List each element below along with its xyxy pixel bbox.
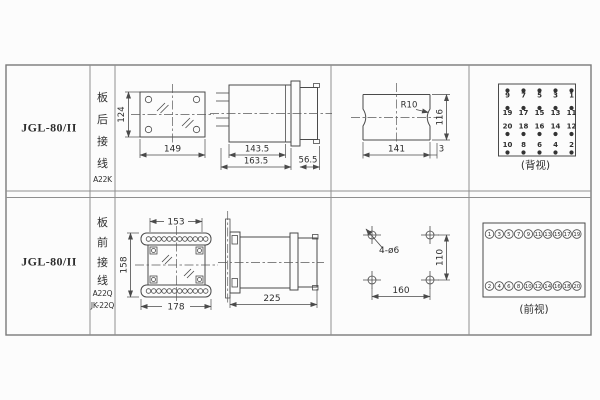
terminal-screw xyxy=(193,289,198,294)
terminal-pin-dot xyxy=(553,132,557,136)
terminal-circle-number: 20 xyxy=(573,284,580,290)
terminal-circle-number: 1 xyxy=(488,232,491,238)
model-name: JGL-80/II xyxy=(21,255,77,269)
terminal-screw xyxy=(157,237,162,242)
terminal-circle-number: 6 xyxy=(507,284,511,290)
front-top-width-dim: 153 xyxy=(167,218,184,228)
terminal-pin-number: 12 xyxy=(567,123,577,131)
terminal-pin-number: 15 xyxy=(535,109,545,117)
wiring-char: 板 xyxy=(97,90,108,104)
wiring-char: 接 xyxy=(97,135,108,148)
terminal-pin-dot xyxy=(569,132,573,136)
terminal-circle-number: 18 xyxy=(564,284,571,290)
front-view-caption: (前视) xyxy=(519,303,548,316)
terminal-pin-dot xyxy=(553,150,557,154)
wiring-char: 接 xyxy=(97,256,108,269)
terminal-screw xyxy=(177,289,182,294)
wiring-char: 板 xyxy=(97,215,108,229)
terminal-pin-number: 5 xyxy=(537,92,542,100)
terminal-pin-dot xyxy=(537,150,541,154)
wiring-type-label: 板 前 接 线 A22Q JK-22Q xyxy=(90,215,115,310)
drill-hole xyxy=(421,226,439,244)
rear-terminal-grid: 9753119171513112018161412108642 xyxy=(503,88,577,154)
terminal-screw xyxy=(188,237,193,242)
terminal-screw xyxy=(151,289,156,294)
strip-screws-top xyxy=(146,237,208,242)
front-terminal-grid: 1357911131517192468101214161820 xyxy=(485,230,581,291)
wiring-char: 线 xyxy=(97,273,108,287)
terminal-circle-number: 9 xyxy=(527,232,531,238)
drill-hole xyxy=(363,271,381,289)
wiring-char: 前 xyxy=(97,235,108,249)
drill-holes-label: 4-ø6 xyxy=(379,246,399,256)
terminal-circle-number: 4 xyxy=(497,284,501,290)
wiring-type-label: 板 后 接 线 A22K xyxy=(93,90,113,184)
terminal-screw xyxy=(177,237,182,242)
cutout-radius-label: R10 xyxy=(401,101,418,111)
terminal-circle-number: 15 xyxy=(554,232,561,238)
terminal-pin-dot xyxy=(505,150,509,154)
terminal-screw xyxy=(172,289,177,294)
terminal-screw xyxy=(162,289,167,294)
terminal-pin-dot xyxy=(521,132,525,136)
side-case-dim: 143.5 xyxy=(245,145,269,155)
front-width-dim: 178 xyxy=(167,303,184,313)
terminal-pin-number: 20 xyxy=(503,123,513,131)
cutout-edge-dim: 3 xyxy=(439,145,444,155)
rear-terminal-view: 9753119171513112018161412108642 (背视) xyxy=(499,84,577,172)
row-front-wiring: JGL-80/II 板 前 接 线 A22Q JK-22Q xyxy=(21,211,585,316)
cutout-height-dim: 116 xyxy=(436,109,446,125)
terminal-pin-dot xyxy=(505,132,509,136)
terminal-circle-number: 14 xyxy=(544,284,551,290)
terminal-screw xyxy=(172,237,177,242)
glass-hatch xyxy=(157,103,194,128)
terminal-screw xyxy=(188,289,193,294)
terminal-pin-number: 18 xyxy=(519,123,529,131)
cutout-width-dim: 141 xyxy=(388,145,405,155)
terminal-pin-number: 14 xyxy=(551,123,561,131)
side-view-drawing: 143.5 163.5 56.5 xyxy=(210,81,332,170)
strip-screws-bottom xyxy=(146,289,208,294)
relay-dimension-sheet: JGL-80/II 板 后 接 线 A22K 124 149 xyxy=(0,0,600,400)
terminal-screw xyxy=(167,289,172,294)
terminal-circle-number: 7 xyxy=(517,232,520,238)
front-view-drawing: 124 149 xyxy=(117,84,214,158)
terminal-pin-number: 1 xyxy=(569,92,574,100)
terminal-screw xyxy=(162,237,167,242)
front-terminal-view: 1357911131517192468101214161820 (前视) xyxy=(483,223,585,316)
terminal-pin-dot xyxy=(521,150,525,154)
terminal-pin-number: 19 xyxy=(503,109,513,117)
glass-hatch xyxy=(162,255,194,278)
front-height-dim: 158 xyxy=(120,256,130,273)
front-width-dim: 149 xyxy=(164,145,181,155)
terminal-circle-number: 19 xyxy=(573,232,580,238)
drill-width-dim: 160 xyxy=(392,286,409,296)
terminal-pin-number: 16 xyxy=(535,123,545,131)
drill-hole xyxy=(421,271,439,289)
wiring-char: 后 xyxy=(97,113,108,126)
terminal-screw xyxy=(167,237,172,242)
terminal-screw xyxy=(157,289,162,294)
side-total-dim: 163.5 xyxy=(244,157,268,167)
terminal-circle-number: 11 xyxy=(535,232,542,238)
terminal-circle-number: 10 xyxy=(525,284,532,290)
terminal-pin-dot xyxy=(569,150,573,154)
row-rear-wiring: JGL-80/II 板 后 接 线 A22K 124 149 xyxy=(21,81,576,184)
side-view-drawing: 225 xyxy=(218,211,324,308)
terminal-pin-number: 3 xyxy=(553,92,558,100)
terminal-pin-dot xyxy=(537,132,541,136)
terminal-pin-number: 17 xyxy=(519,109,529,117)
terminal-screw xyxy=(198,237,203,242)
terminal-pin-number: 2 xyxy=(569,141,574,149)
panel-cutout-drawing: R10 116 141 3 xyxy=(351,83,450,159)
rear-view-caption: (背视) xyxy=(521,159,550,172)
wiring-code: A22Q xyxy=(93,289,113,298)
terminal-circle-number: 2 xyxy=(488,284,491,290)
terminal-pin-number: 13 xyxy=(551,109,561,117)
terminal-screw xyxy=(146,289,151,294)
side-rear-dim: 56.5 xyxy=(299,156,318,166)
terminal-circle-number: 16 xyxy=(554,284,561,290)
terminal-pin-number: 6 xyxy=(537,141,542,149)
drill-pattern-drawing: 4-ø6 110 160 xyxy=(363,226,450,300)
terminal-screw xyxy=(146,237,151,242)
terminal-circle-number: 12 xyxy=(535,284,542,290)
terminal-screw xyxy=(203,237,208,242)
drawing-svg: JGL-80/II 板 后 接 线 A22K 124 149 xyxy=(0,0,600,400)
terminal-screw xyxy=(203,289,208,294)
terminal-screw xyxy=(198,289,203,294)
terminal-circle-number: 17 xyxy=(564,232,571,238)
terminal-pin-number: 4 xyxy=(553,141,558,149)
terminal-circle-number: 8 xyxy=(517,284,521,290)
terminal-circle-number: 13 xyxy=(544,232,551,238)
terminal-screw xyxy=(193,237,198,242)
front-height-dim: 124 xyxy=(117,106,127,122)
terminal-pin-number: 10 xyxy=(503,141,513,149)
model-name: JGL-80/II xyxy=(21,121,77,135)
terminal-pin-number: 7 xyxy=(521,92,526,100)
front-view-drawing: 153 158 178 xyxy=(120,218,219,313)
side-depth-dim: 225 xyxy=(263,294,280,304)
terminal-pin-number: 11 xyxy=(567,109,577,117)
wiring-char: 线 xyxy=(97,156,108,170)
terminal-screw xyxy=(151,237,156,242)
terminal-circle-number: 5 xyxy=(507,232,510,238)
terminal-screw xyxy=(183,289,188,294)
terminal-screw xyxy=(183,237,188,242)
terminal-circle-number: 3 xyxy=(497,232,500,238)
drill-height-dim: 110 xyxy=(436,249,446,266)
terminal-pin-number: 8 xyxy=(521,141,526,149)
wiring-code: JK-22Q xyxy=(90,301,115,310)
wiring-code: A22K xyxy=(93,175,113,184)
terminal-pin-number: 9 xyxy=(505,92,510,100)
drill-hole xyxy=(363,226,381,244)
